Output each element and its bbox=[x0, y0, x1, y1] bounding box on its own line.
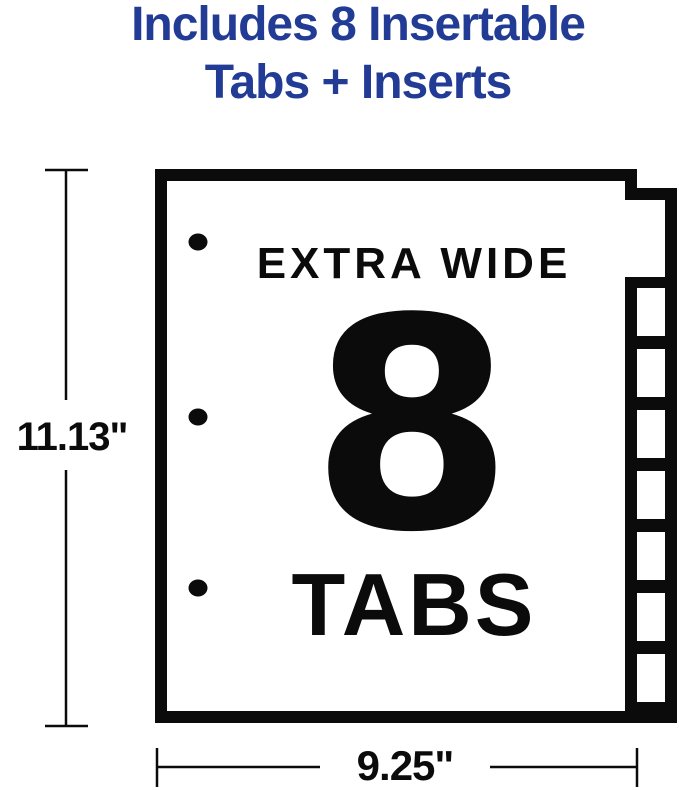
tab-window bbox=[637, 288, 665, 336]
punch-hole bbox=[189, 234, 208, 251]
height-dimension-label: 11.13" bbox=[17, 417, 128, 457]
punch-hole bbox=[189, 409, 208, 426]
punch-hole bbox=[189, 580, 208, 597]
tab-window bbox=[637, 349, 665, 397]
tab-count-number: 8 bbox=[310, 280, 513, 572]
tab-window bbox=[637, 532, 665, 580]
width-dimension-label: 9.25" bbox=[349, 745, 462, 787]
tabs-label: TABS bbox=[291, 561, 536, 649]
tab-window bbox=[637, 654, 665, 702]
tab-window bbox=[637, 471, 665, 519]
tab-window bbox=[637, 593, 665, 641]
tab-window bbox=[637, 410, 665, 458]
product-illustration: Includes 8 Insertable Tabs + Inserts bbox=[0, 0, 679, 790]
tab-1 bbox=[625, 200, 665, 277]
